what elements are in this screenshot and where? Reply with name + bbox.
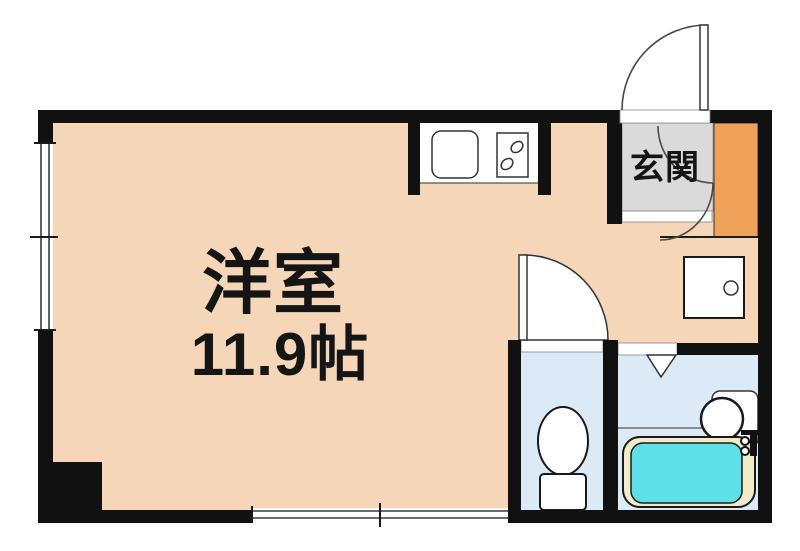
wall-left-upper (38, 110, 53, 143)
wall-top (38, 110, 620, 123)
toilet-door-leaf (519, 255, 527, 340)
wall-bottom-left (38, 510, 252, 523)
toilet-bath-divider-wall (603, 340, 618, 510)
wash-basin (701, 398, 743, 440)
entrance-hall-wall (607, 110, 622, 224)
kitchen-pillar-right (538, 123, 551, 195)
bathroom-top-wall (677, 343, 758, 355)
entrance-step-accent (714, 123, 758, 237)
entrance-hall-opening (622, 211, 712, 222)
floor-plan-drawing (0, 0, 800, 551)
floor-plan: 洋室 11.9帖 玄関 (0, 0, 800, 551)
entrance-door-swing (622, 25, 707, 110)
main-room-size-label: 11.9帖 (191, 325, 369, 385)
bath-faucet-icon (741, 430, 758, 456)
toilet-wall-left (508, 340, 521, 510)
entrance-door-opening (620, 110, 710, 123)
wall-bottom-right (508, 510, 772, 523)
kitchen-sink (432, 131, 478, 178)
toilet-tank (540, 474, 586, 510)
toilet-bowl (538, 407, 588, 475)
stove (497, 133, 528, 177)
entrance-door-leaf (700, 25, 708, 110)
washer-drain-icon (724, 281, 738, 295)
toilet-door-opening (521, 340, 603, 352)
entrance-label: 玄関 (630, 151, 700, 185)
bathtub-water (631, 443, 742, 503)
wall-left-lower (38, 330, 53, 462)
kitchen-pillar-left (408, 123, 420, 195)
wall-right (758, 110, 772, 523)
main-room-label: 洋室 (202, 248, 344, 318)
bathroom-door-opening (618, 343, 677, 355)
